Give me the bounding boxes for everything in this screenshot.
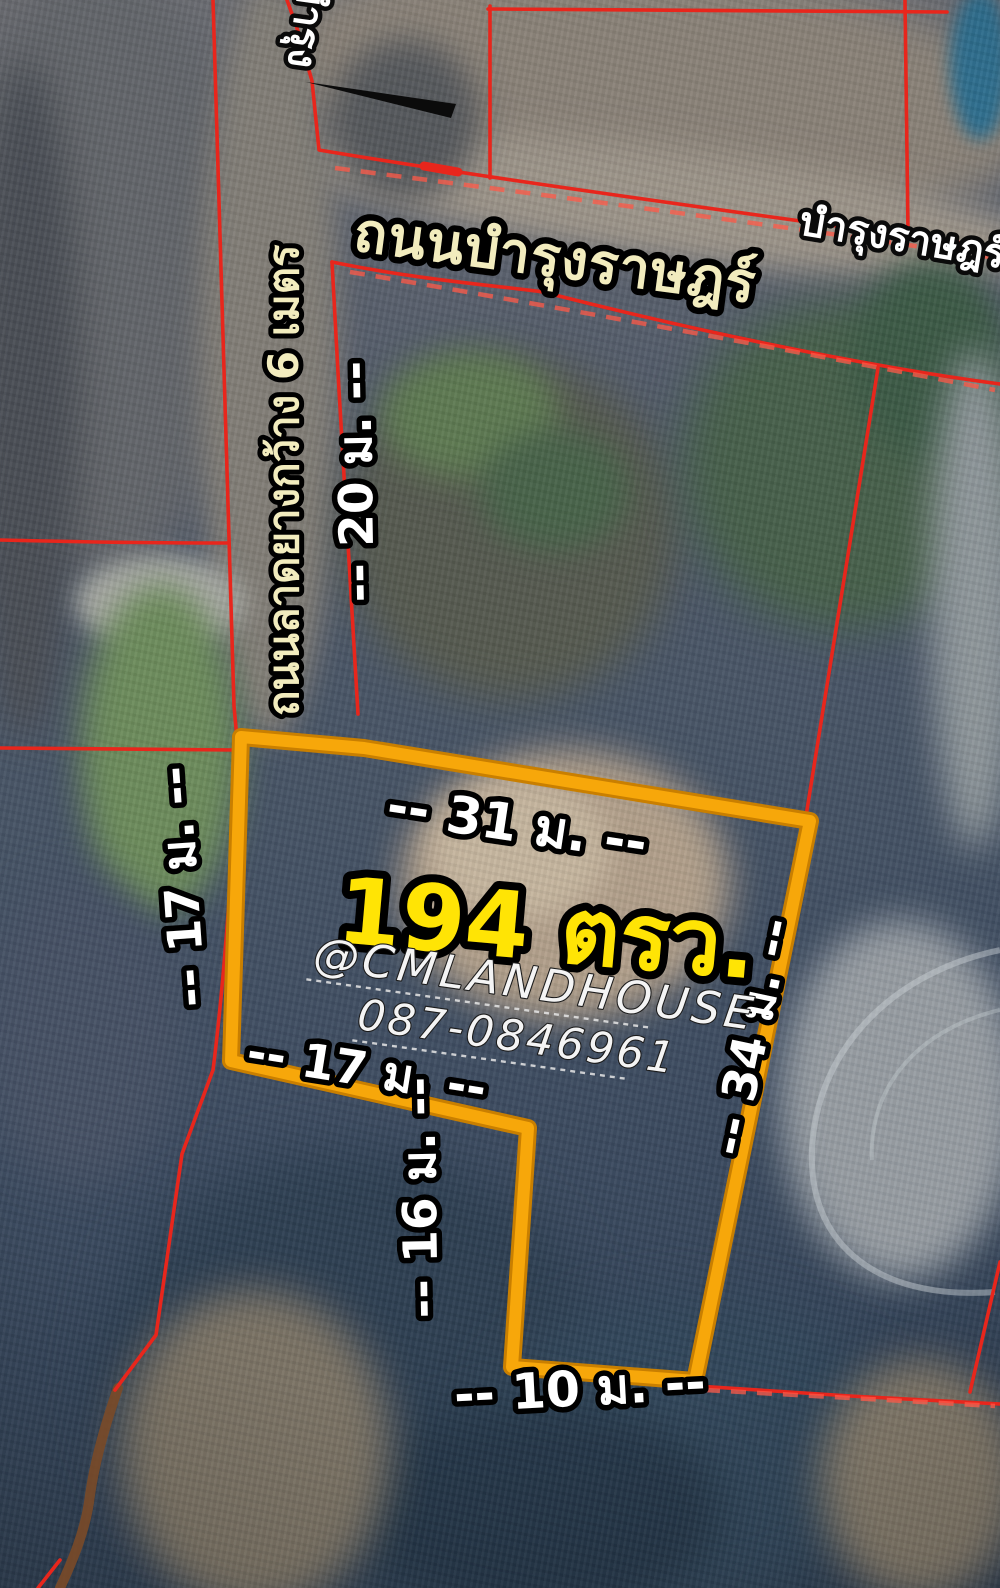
boundary-west-horizontal-2	[0, 748, 237, 750]
boundary-east-parcel	[806, 368, 878, 816]
annotation-overlay: ถนนบำรุงราษฎร์ บำรุงราษฎร์ บำรุง ถนนลาดย…	[0, 0, 1000, 1588]
boundary-top-horizontal	[488, 9, 947, 12]
dirt-track-feature	[60, 1388, 118, 1588]
pointer-arrow	[306, 82, 456, 118]
driveway-ring-feature	[812, 950, 1000, 1293]
measure-road-depth-20m: -- 20 ม. --	[327, 360, 386, 602]
measure-left-17m: -- 17 ม. --	[146, 764, 218, 1009]
boundary-bottom-right-diagonal	[970, 1262, 1000, 1392]
measure-bottom-10m: -- 10 ม. --	[453, 1354, 707, 1424]
side-road-label: ถนนลาดยางกว้าง 6 เมตร	[259, 244, 308, 716]
satellite-map: ถนนบำรุงราษฎร์ บำรุงราษฎร์ บำรุง ถนนลาดย…	[0, 0, 1000, 1588]
road-label-right-partial: บำรุงราษฎร์	[796, 198, 1000, 280]
boundary-west-horizontal-1	[0, 540, 228, 543]
boundary-bottom-dashes	[705, 1390, 995, 1406]
road-label-topleft-partial: บำรุง	[276, 0, 336, 71]
boundary-west-long	[115, 0, 238, 1390]
driveway-ring-inner-feature	[872, 1010, 1000, 1160]
boundary-bottom-horizontal	[697, 1386, 1000, 1404]
boundary-mark-thick	[424, 166, 458, 172]
boundary-top-right-vertical	[905, 0, 908, 231]
measure-lowerleft-16m: -- 16 ม. --	[391, 1076, 450, 1318]
